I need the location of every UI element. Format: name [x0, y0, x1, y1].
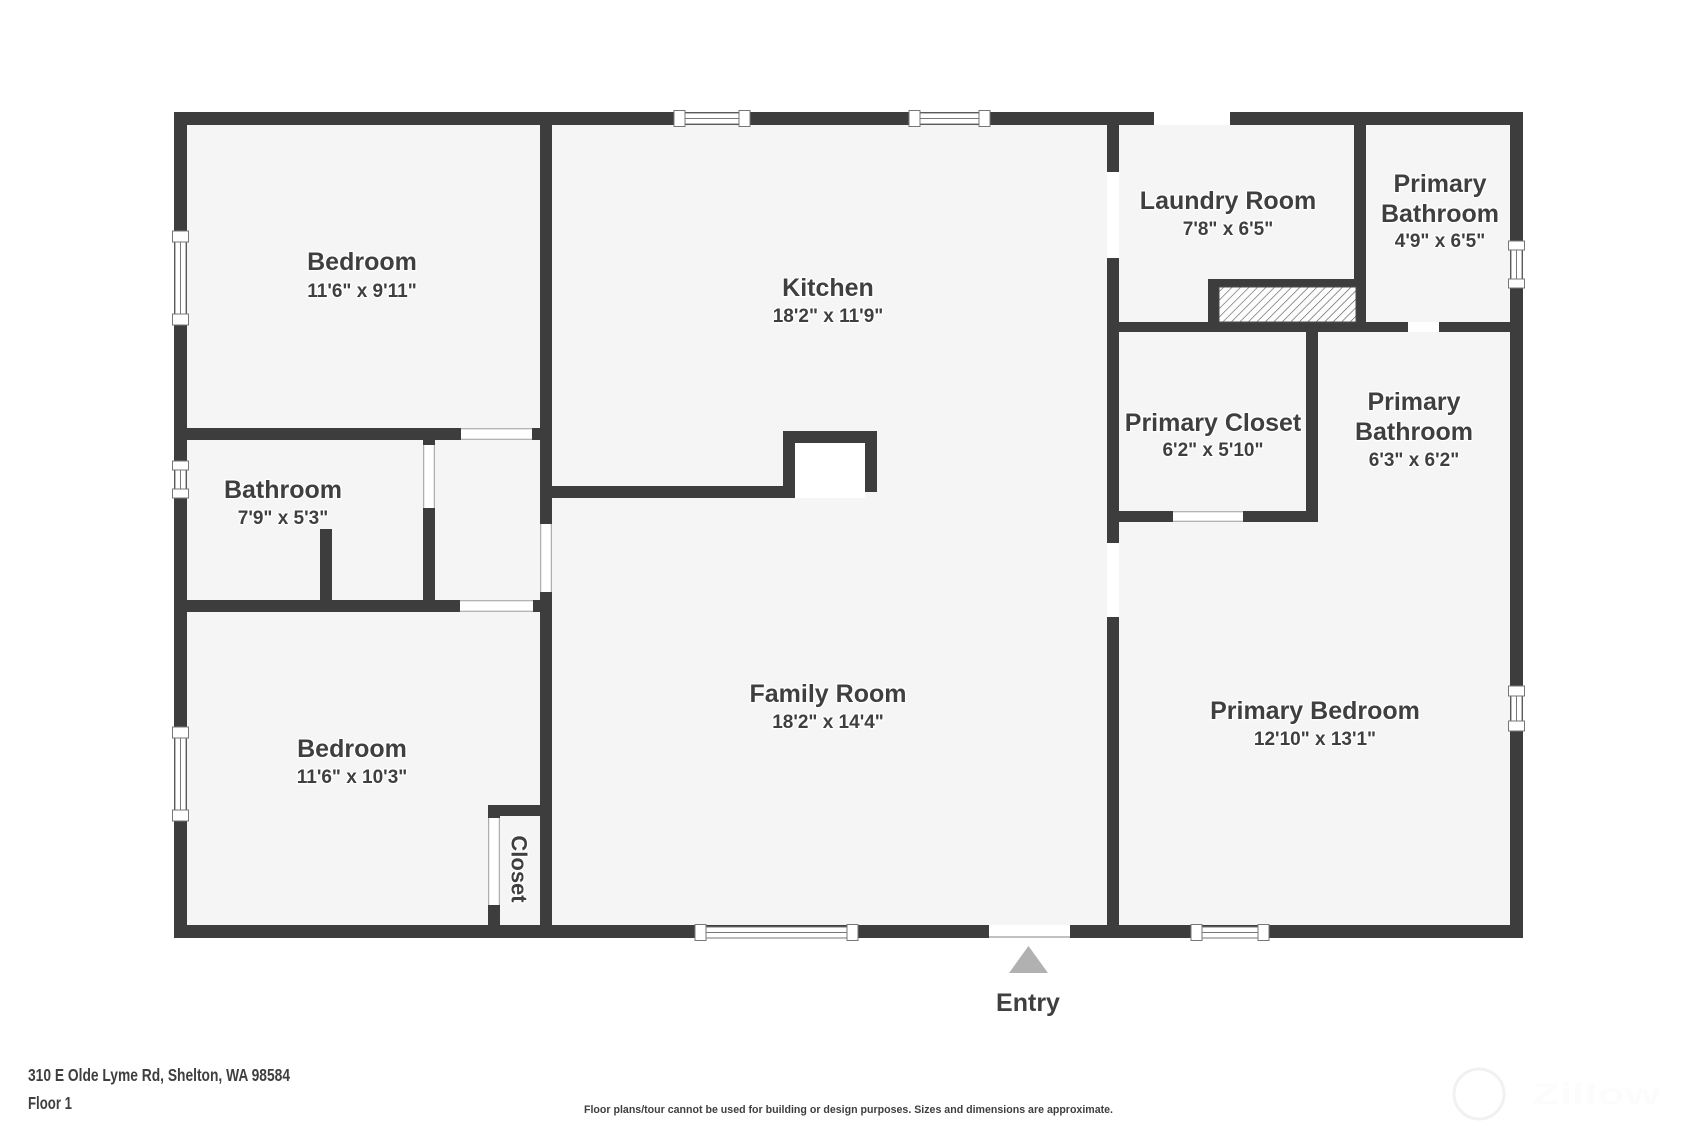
svg-text:11'6" x 9'11": 11'6" x 9'11": [307, 281, 416, 302]
svg-text:11'6" x 10'3": 11'6" x 10'3": [297, 767, 408, 788]
svg-text:Bathroom: Bathroom: [1355, 418, 1473, 446]
svg-text:6'2" x 5'10": 6'2" x 5'10": [1162, 440, 1263, 461]
svg-text:Primary Bedroom: Primary Bedroom: [1210, 697, 1420, 725]
svg-text:18'2" x 11'9": 18'2" x 11'9": [773, 306, 884, 327]
svg-text:Primary Closet: Primary Closet: [1125, 409, 1302, 437]
svg-text:310 E Olde Lyme Rd, Shelton, W: 310 E Olde Lyme Rd, Shelton, WA 98584: [28, 1065, 290, 1085]
svg-text:Bathroom: Bathroom: [224, 476, 342, 504]
svg-text:Floor plans/tour cannot be use: Floor plans/tour cannot be used for buil…: [584, 1104, 1113, 1116]
svg-text:12'10" x 13'1": 12'10" x 13'1": [1254, 729, 1376, 750]
svg-text:7'9" x 5'3": 7'9" x 5'3": [238, 508, 328, 529]
svg-text:Closet: Closet: [507, 835, 532, 903]
svg-text:Entry: Entry: [996, 989, 1060, 1017]
svg-text:Laundry Room: Laundry Room: [1140, 187, 1316, 215]
svg-text:18'2" x 14'4": 18'2" x 14'4": [772, 712, 884, 733]
svg-text:Primary: Primary: [1367, 388, 1460, 416]
svg-text:Zillow: Zillow: [1532, 1078, 1661, 1111]
svg-text:Bedroom: Bedroom: [307, 248, 417, 276]
svg-text:Bedroom: Bedroom: [297, 735, 407, 763]
svg-text:7'8" x 6'5": 7'8" x 6'5": [1183, 219, 1273, 240]
svg-text:Floor 1: Floor 1: [28, 1093, 72, 1113]
svg-text:6'3" x 6'2": 6'3" x 6'2": [1369, 450, 1459, 471]
svg-text:Kitchen: Kitchen: [782, 274, 874, 302]
svg-text:4'9" x 6'5": 4'9" x 6'5": [1395, 231, 1485, 252]
svg-text:Family Room: Family Room: [750, 680, 907, 708]
svg-text:Primary: Primary: [1393, 170, 1486, 198]
svg-text:Bathroom: Bathroom: [1381, 200, 1499, 228]
